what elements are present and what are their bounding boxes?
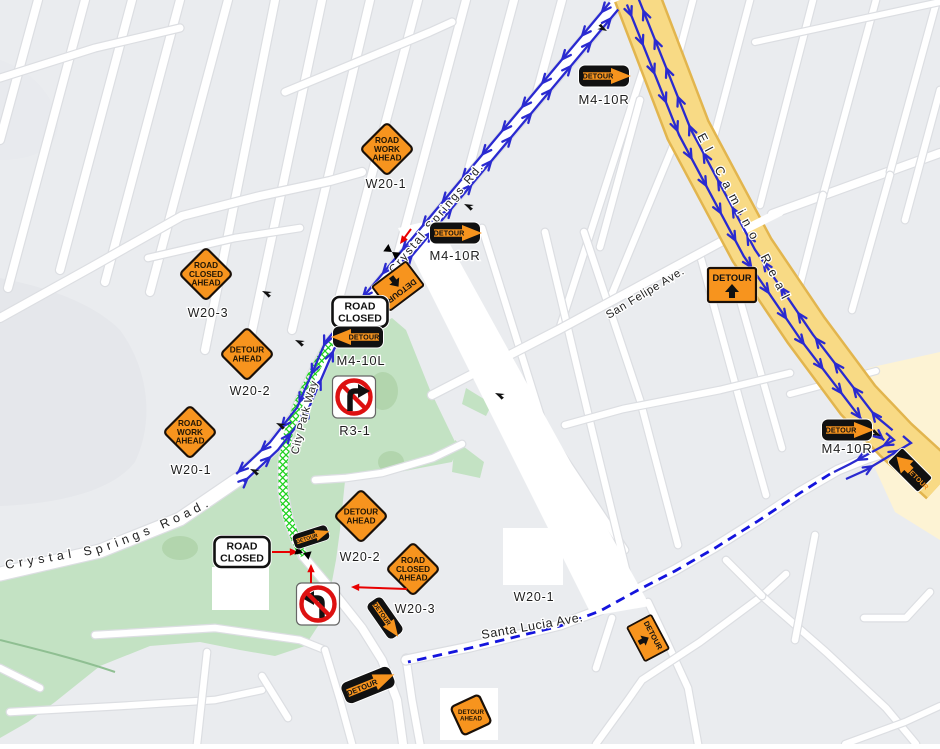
svg-text:AHEAD: AHEAD <box>372 154 401 163</box>
svg-text:CLOSED: CLOSED <box>220 552 264 564</box>
svg-text:CLOSED: CLOSED <box>189 270 223 279</box>
svg-text:AHEAD: AHEAD <box>191 279 220 288</box>
svg-text:AHEAD: AHEAD <box>460 716 483 723</box>
svg-text:ROAD: ROAD <box>375 136 399 145</box>
svg-text:DETOUR: DETOUR <box>583 72 615 81</box>
svg-text:ROAD: ROAD <box>178 419 202 428</box>
svg-text:AHEAD: AHEAD <box>232 354 261 363</box>
svg-text:CLOSED: CLOSED <box>396 565 430 574</box>
svg-text:R3-1: R3-1 <box>339 423 370 438</box>
svg-text:WORK: WORK <box>177 428 203 437</box>
svg-text:M4-10R: M4-10R <box>429 248 480 263</box>
svg-text:DETOUR: DETOUR <box>712 273 751 283</box>
svg-text:W20-1: W20-1 <box>514 590 555 604</box>
svg-text:W20-2: W20-2 <box>230 384 271 398</box>
svg-text:DETOUR: DETOUR <box>344 508 379 517</box>
svg-text:W20-3: W20-3 <box>395 602 436 616</box>
svg-text:M4-10R: M4-10R <box>578 92 629 107</box>
svg-text:W20-2: W20-2 <box>340 550 381 564</box>
svg-text:M4-10R: M4-10R <box>821 441 872 456</box>
svg-text:WORK: WORK <box>374 145 400 154</box>
svg-text:AHEAD: AHEAD <box>175 437 204 446</box>
svg-text:ROAD: ROAD <box>345 300 376 312</box>
svg-text:ROAD: ROAD <box>401 556 425 565</box>
svg-text:AHEAD: AHEAD <box>398 574 427 583</box>
svg-text:DETOUR: DETOUR <box>434 229 466 238</box>
svg-text:AHEAD: AHEAD <box>346 516 375 525</box>
svg-text:ROAD: ROAD <box>227 540 258 552</box>
svg-text:W20-3: W20-3 <box>188 306 229 320</box>
svg-text:DETOUR: DETOUR <box>230 346 265 355</box>
svg-text:M4-10L: M4-10L <box>337 353 386 368</box>
svg-text:CLOSED: CLOSED <box>338 312 382 324</box>
svg-text:DETOUR: DETOUR <box>349 333 381 342</box>
svg-text:DETOUR: DETOUR <box>826 426 858 435</box>
svg-text:W20-1: W20-1 <box>171 463 212 477</box>
svg-text:W20-1: W20-1 <box>366 177 407 191</box>
svg-text:ROAD: ROAD <box>194 261 218 270</box>
